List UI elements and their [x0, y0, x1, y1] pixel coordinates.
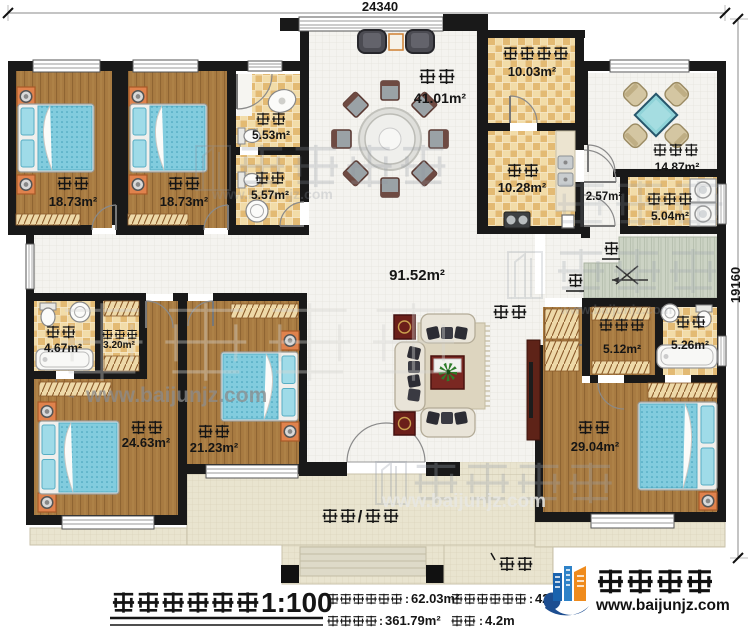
svg-text::: :	[379, 614, 383, 628]
svg-text:5.12m²: 5.12m²	[603, 342, 641, 356]
svg-text:361.79m²: 361.79m²	[385, 613, 441, 628]
svg-text:19160: 19160	[728, 267, 743, 303]
svg-text:/: /	[358, 507, 363, 526]
svg-text:24.63m²: 24.63m²	[122, 435, 171, 450]
svg-text:5.26m²: 5.26m²	[671, 338, 709, 352]
svg-text:5.04m²: 5.04m²	[651, 209, 689, 223]
svg-text:10.28m²: 10.28m²	[498, 180, 547, 195]
svg-text:21.23m²: 21.23m²	[190, 440, 239, 455]
svg-text::: :	[529, 592, 533, 606]
svg-text:41.01m²: 41.01m²	[414, 90, 466, 106]
svg-text:1:100: 1:100	[261, 587, 333, 618]
svg-text:www.baijunjz.com: www.baijunjz.com	[85, 384, 267, 407]
svg-text:4.67m²: 4.67m²	[44, 341, 82, 355]
svg-text:www.baijunjz.com: www.baijunjz.com	[559, 302, 672, 317]
svg-text:18.73m²: 18.73m²	[160, 194, 209, 209]
svg-text:18.73m²: 18.73m²	[49, 194, 98, 209]
svg-text:29.04m²: 29.04m²	[571, 439, 620, 454]
svg-text:24340: 24340	[362, 0, 398, 14]
svg-text:3.20m²: 3.20m²	[103, 340, 135, 351]
svg-text::: :	[405, 592, 409, 606]
svg-text:2.57m²: 2.57m²	[586, 191, 623, 203]
svg-text:www.baijunjz.com: www.baijunjz.com	[381, 491, 546, 512]
svg-text:10.03m²: 10.03m²	[508, 64, 557, 79]
svg-text:5.57m²: 5.57m²	[251, 188, 289, 202]
svg-text:5.53m²: 5.53m²	[252, 128, 290, 142]
svg-text:www.baijunjz.com: www.baijunjz.com	[595, 597, 730, 614]
svg-text:14.87m²: 14.87m²	[655, 160, 700, 174]
svg-text:4.2m: 4.2m	[485, 613, 515, 628]
svg-text:91.52m²: 91.52m²	[389, 267, 445, 284]
svg-text::: :	[479, 614, 483, 628]
